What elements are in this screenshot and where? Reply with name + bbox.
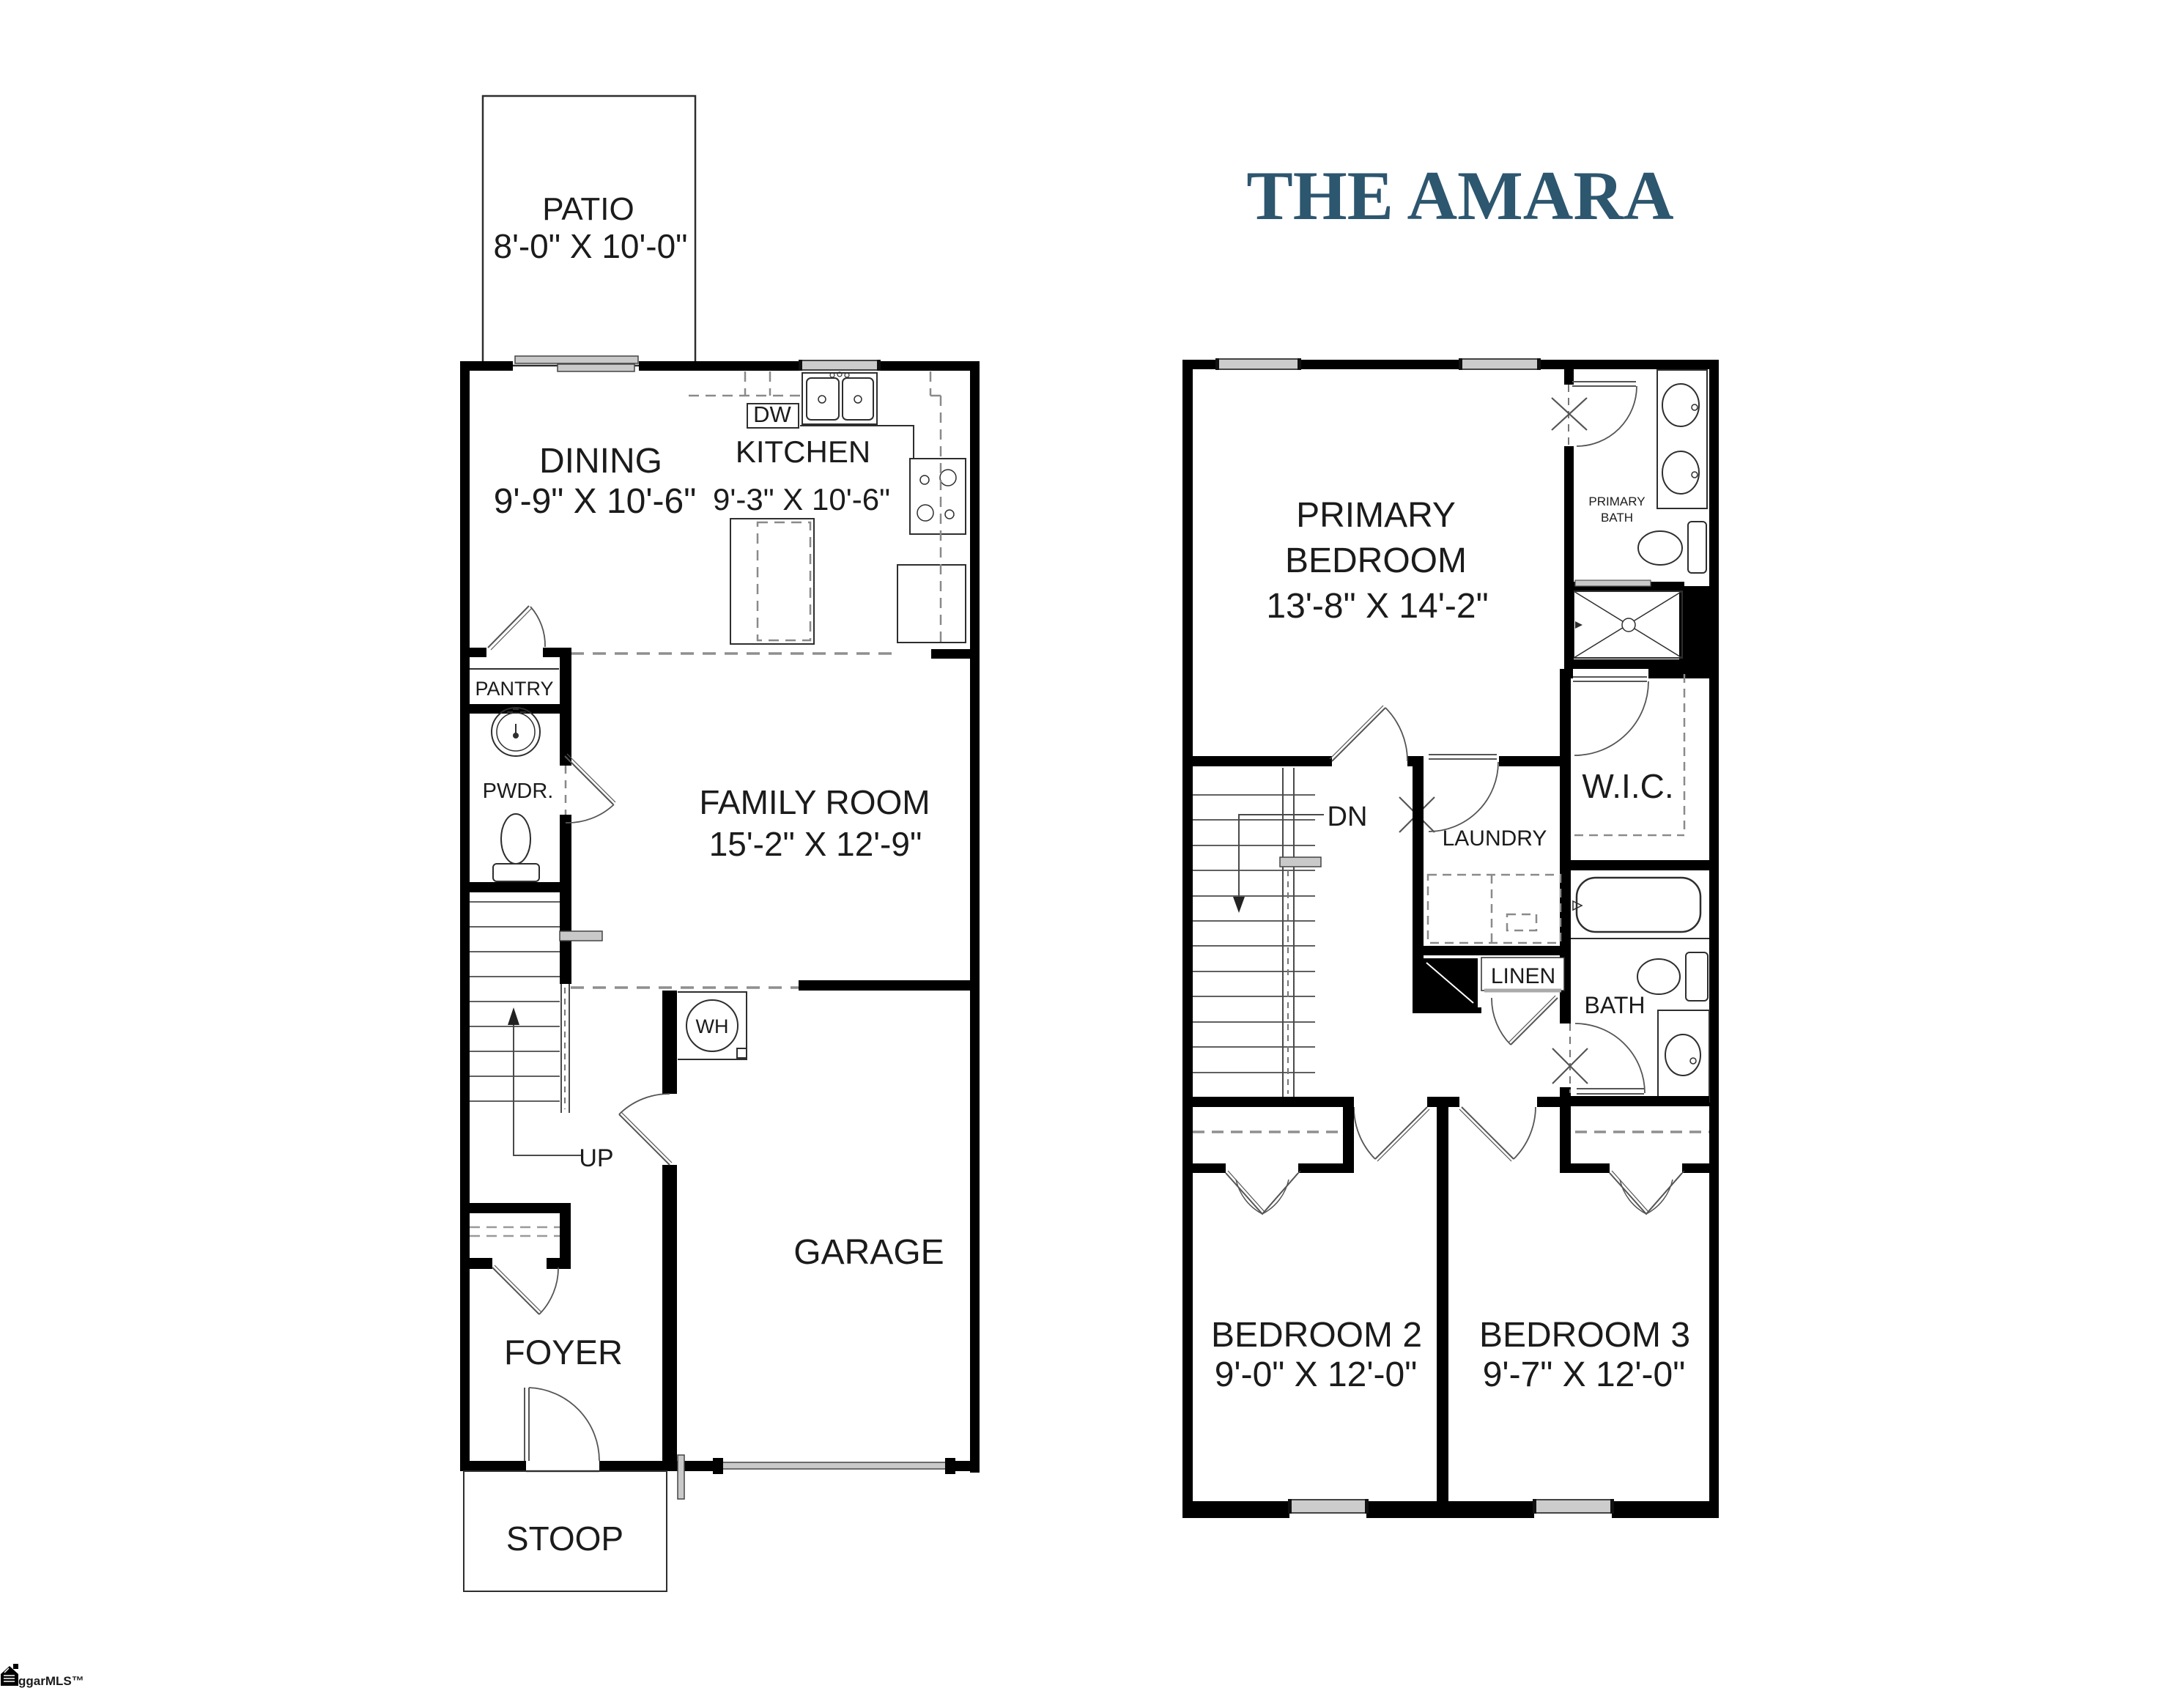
svg-text:9'-0" X 12'-0": 9'-0" X 12'-0" <box>1215 1355 1418 1394</box>
svg-text:PRIMARY: PRIMARY <box>1588 495 1645 508</box>
svg-text:GARAGE: GARAGE <box>793 1233 944 1272</box>
svg-text:WH: WH <box>696 1015 729 1037</box>
svg-text:9'-7" X 12'-0": 9'-7" X 12'-0" <box>1483 1355 1686 1394</box>
svg-text:9'-9" X 10'-6": 9'-9" X 10'-6" <box>494 482 697 521</box>
svg-text:PANTRY: PANTRY <box>475 678 553 700</box>
svg-text:W.I.C.: W.I.C. <box>1582 767 1673 805</box>
svg-text:BATH: BATH <box>1601 511 1633 525</box>
svg-text:LAUNDRY: LAUNDRY <box>1443 826 1547 851</box>
svg-text:BEDROOM 2: BEDROOM 2 <box>1211 1316 1422 1355</box>
svg-text:THE AMARA: THE AMARA <box>1246 157 1673 234</box>
svg-text:STOOP: STOOP <box>506 1519 623 1558</box>
svg-text:FAMILY ROOM: FAMILY ROOM <box>699 783 930 821</box>
svg-text:DN: DN <box>1328 802 1368 832</box>
svg-text:LINEN: LINEN <box>1491 964 1555 988</box>
svg-text:BEDROOM 3: BEDROOM 3 <box>1479 1316 1690 1355</box>
svg-text:ggarMLS™: ggarMLS™ <box>18 1674 84 1688</box>
svg-text:BATH: BATH <box>1585 992 1646 1018</box>
svg-text:BEDROOM: BEDROOM <box>1285 541 1467 580</box>
svg-text:KITCHEN: KITCHEN <box>736 434 870 469</box>
svg-text:DW: DW <box>753 401 791 427</box>
svg-text:13'-8" X 14'-2": 13'-8" X 14'-2" <box>1266 587 1488 626</box>
svg-text:PRIMARY: PRIMARY <box>1296 496 1456 535</box>
svg-text:PATIO: PATIO <box>542 191 634 227</box>
svg-text:8'-0" X 10'-0": 8'-0" X 10'-0" <box>493 227 687 265</box>
svg-text:DINING: DINING <box>539 442 662 481</box>
svg-text:9'-3" X 10'-6": 9'-3" X 10'-6" <box>713 482 890 517</box>
svg-text:FOYER: FOYER <box>504 1333 623 1371</box>
svg-text:15'-2" X 12'-9": 15'-2" X 12'-9" <box>709 825 922 863</box>
svg-text:PWDR.: PWDR. <box>483 780 554 803</box>
svg-text:UP: UP <box>579 1144 613 1172</box>
